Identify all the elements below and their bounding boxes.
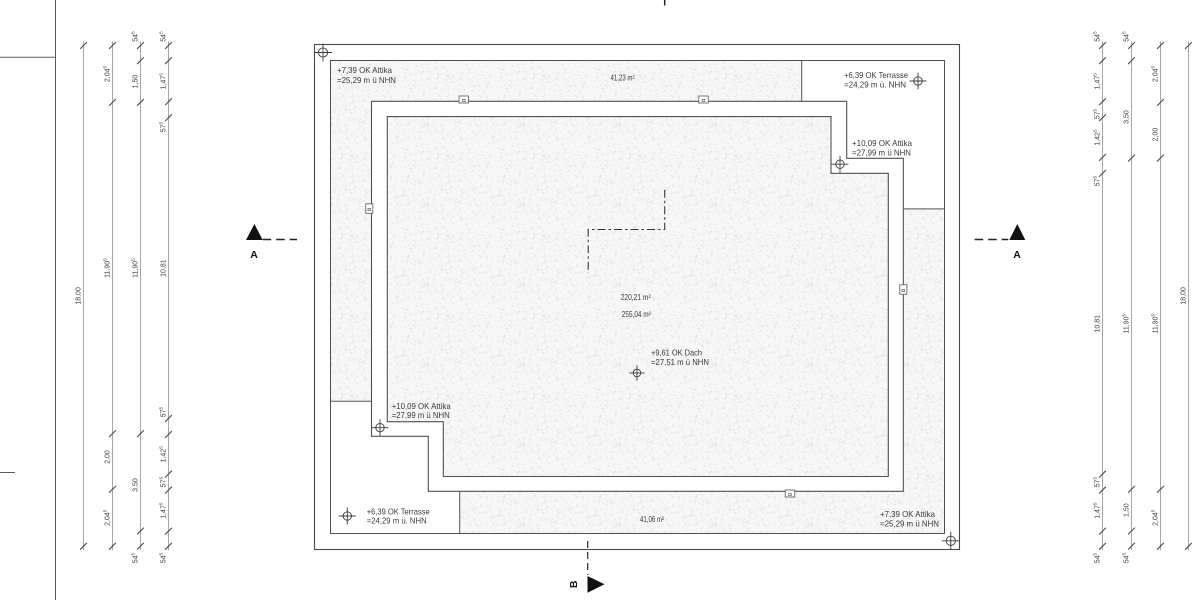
svg-text:=27,99 m ü NHN: =27,99 m ü NHN (392, 410, 450, 420)
svg-text:11,905: 11,905 (131, 258, 140, 278)
svg-text:A: A (1013, 249, 1021, 261)
svg-text:+9,61 OK Dach: +9,61 OK Dach (651, 348, 702, 358)
svg-text:=27,99 m ü NHN: =27,99 m ü NHN (852, 148, 911, 158)
svg-text:11,905: 11,905 (1122, 313, 1131, 333)
svg-text:11,905: 11,905 (1151, 313, 1160, 333)
svg-text:=27,51 m ü NHN: =27,51 m ü NHN (651, 357, 709, 367)
svg-text:3,50: 3,50 (132, 478, 139, 492)
svg-text:+6,39 OK Terrasse: +6,39 OK Terrasse (844, 70, 908, 80)
svg-text:220,21 m²: 220,21 m² (621, 293, 651, 302)
svg-text:1,50: 1,50 (1123, 503, 1130, 517)
svg-text:+10,09 OK Attika: +10,09 OK Attika (852, 138, 912, 148)
svg-text:2,00: 2,00 (104, 450, 111, 464)
svg-text:18,00: 18,00 (75, 287, 82, 305)
svg-text:A: A (250, 249, 258, 261)
svg-text:255,04 m²: 255,04 m² (622, 310, 651, 319)
svg-text:=25,29 m ü NHN: =25,29 m ü NHN (880, 519, 939, 529)
svg-text:3,50: 3,50 (1123, 110, 1130, 124)
svg-text:=24,29 m ü. NHN: =24,29 m ü. NHN (367, 516, 427, 526)
svg-text:B: B (568, 580, 580, 588)
svg-text:41,23 m²: 41,23 m² (611, 74, 635, 83)
svg-text:2,00: 2,00 (1152, 128, 1159, 142)
svg-text:=24,29 m ü. NHN: =24,29 m ü. NHN (844, 80, 906, 90)
svg-text:+7,39 OK Attika: +7,39 OK Attika (337, 65, 392, 75)
svg-text:10,81: 10,81 (160, 259, 167, 277)
svg-text:+7,39 OK Attika: +7,39 OK Attika (880, 509, 935, 519)
svg-text:1,50: 1,50 (132, 75, 139, 89)
svg-text:=25,29 m ü NHN: =25,29 m ü NHN (337, 75, 396, 85)
svg-text:10,81: 10,81 (1094, 315, 1101, 333)
svg-text:41,06 m²: 41,06 m² (640, 515, 664, 524)
svg-text:11,905: 11,905 (103, 258, 112, 278)
svg-text:18,00: 18,00 (1180, 287, 1187, 305)
